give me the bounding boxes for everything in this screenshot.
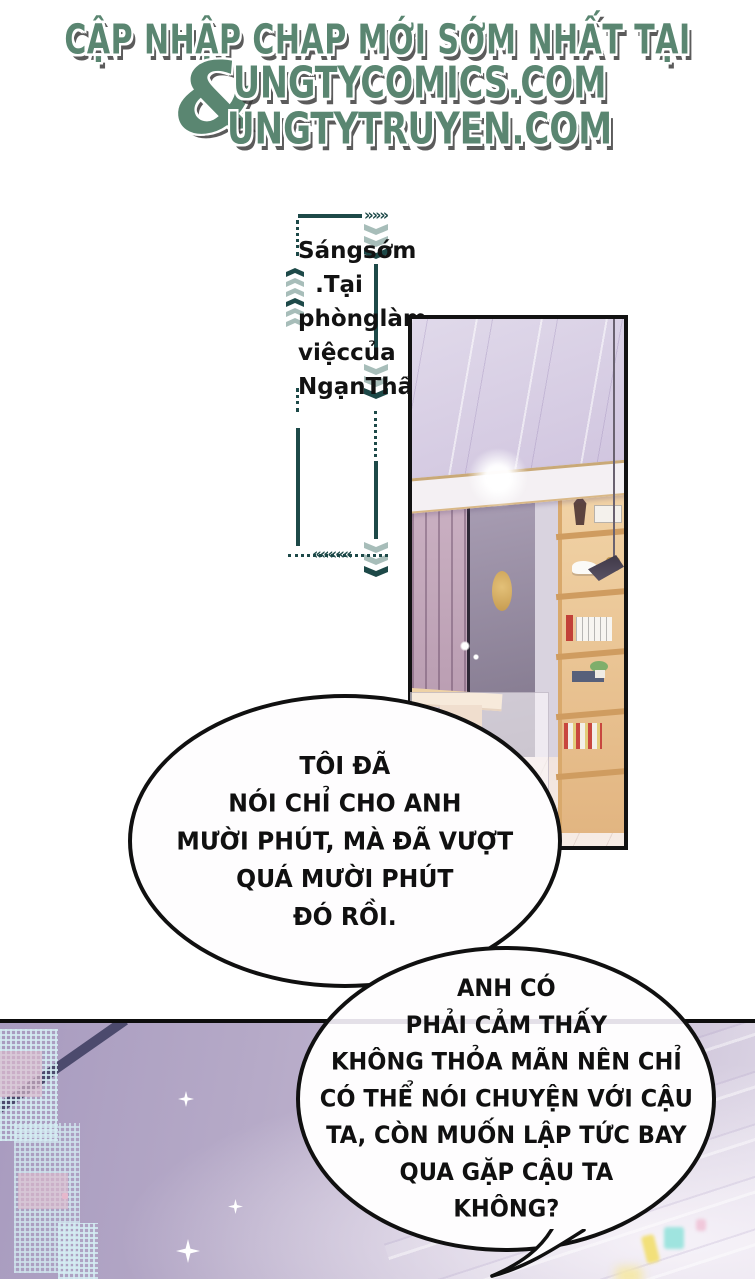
pixel-texture bbox=[58, 1223, 98, 1279]
light-orb bbox=[460, 641, 470, 651]
sparkle-icon bbox=[178, 1091, 194, 1107]
speech-text-2: ANH CÓ PHẢI CẢM THẤY KHÔNG THỎA MÃN NÊN … bbox=[319, 970, 692, 1227]
chevron-right-icon: »»» bbox=[364, 208, 387, 223]
speech-bubble-1: TÔI ĐÃ NÓI CHỈ CHO ANH MƯỜI PHÚT, MÀ ĐÃ … bbox=[128, 694, 562, 988]
caption-dotted-rule bbox=[374, 411, 377, 457]
plant-pot bbox=[595, 670, 605, 678]
light-orb bbox=[473, 654, 479, 660]
comic-page: CẬP NHẬP CHAP MỚI SỚM NHẤT TẠI & UNGTYCO… bbox=[0, 0, 755, 1279]
red-book bbox=[566, 615, 573, 641]
caption-top-rule bbox=[298, 214, 362, 218]
site-url-secondary: UNGTYTRUYEN.COM bbox=[227, 104, 612, 155]
sparkle-icon bbox=[228, 1199, 243, 1214]
site-url-primary: UNGTYCOMICS.COM bbox=[233, 58, 606, 109]
lens-flare bbox=[616, 1267, 642, 1279]
scene-caption-text: Sángsớm .Tại phònglàm việccủa NgạnThất bbox=[298, 234, 380, 404]
chevron-down-icon bbox=[364, 542, 388, 577]
light-glow bbox=[467, 449, 529, 507]
sparkle-icon bbox=[176, 1239, 200, 1263]
scene-caption-box: »»» ««««« Sángsớm .Tại phònglàm việccủa … bbox=[284, 206, 394, 568]
pink-dot bbox=[62, 1193, 68, 1199]
pink-patch bbox=[0, 1051, 42, 1097]
pink-patch bbox=[18, 1173, 68, 1209]
book-row bbox=[576, 617, 612, 641]
caption-right-rule bbox=[374, 461, 378, 539]
speech-text-1: TÔI ĐÃ NÓI CHỈ CHO ANH MƯỜI PHÚT, MÀ ĐÃ … bbox=[177, 747, 514, 936]
lens-flare bbox=[664, 1227, 684, 1249]
display-box bbox=[594, 505, 622, 523]
lamp-cord bbox=[613, 319, 615, 559]
chevron-left-icon: ««««« bbox=[312, 547, 350, 562]
lens-flare bbox=[696, 1219, 706, 1231]
door-ornament bbox=[492, 571, 512, 611]
caption-left-rule bbox=[296, 428, 300, 546]
book-row bbox=[564, 723, 602, 749]
speech-bubble-tail bbox=[462, 1229, 612, 1279]
speech-bubble-2: ANH CÓ PHẢI CẢM THẤY KHÔNG THỎA MÃN NÊN … bbox=[296, 946, 716, 1252]
